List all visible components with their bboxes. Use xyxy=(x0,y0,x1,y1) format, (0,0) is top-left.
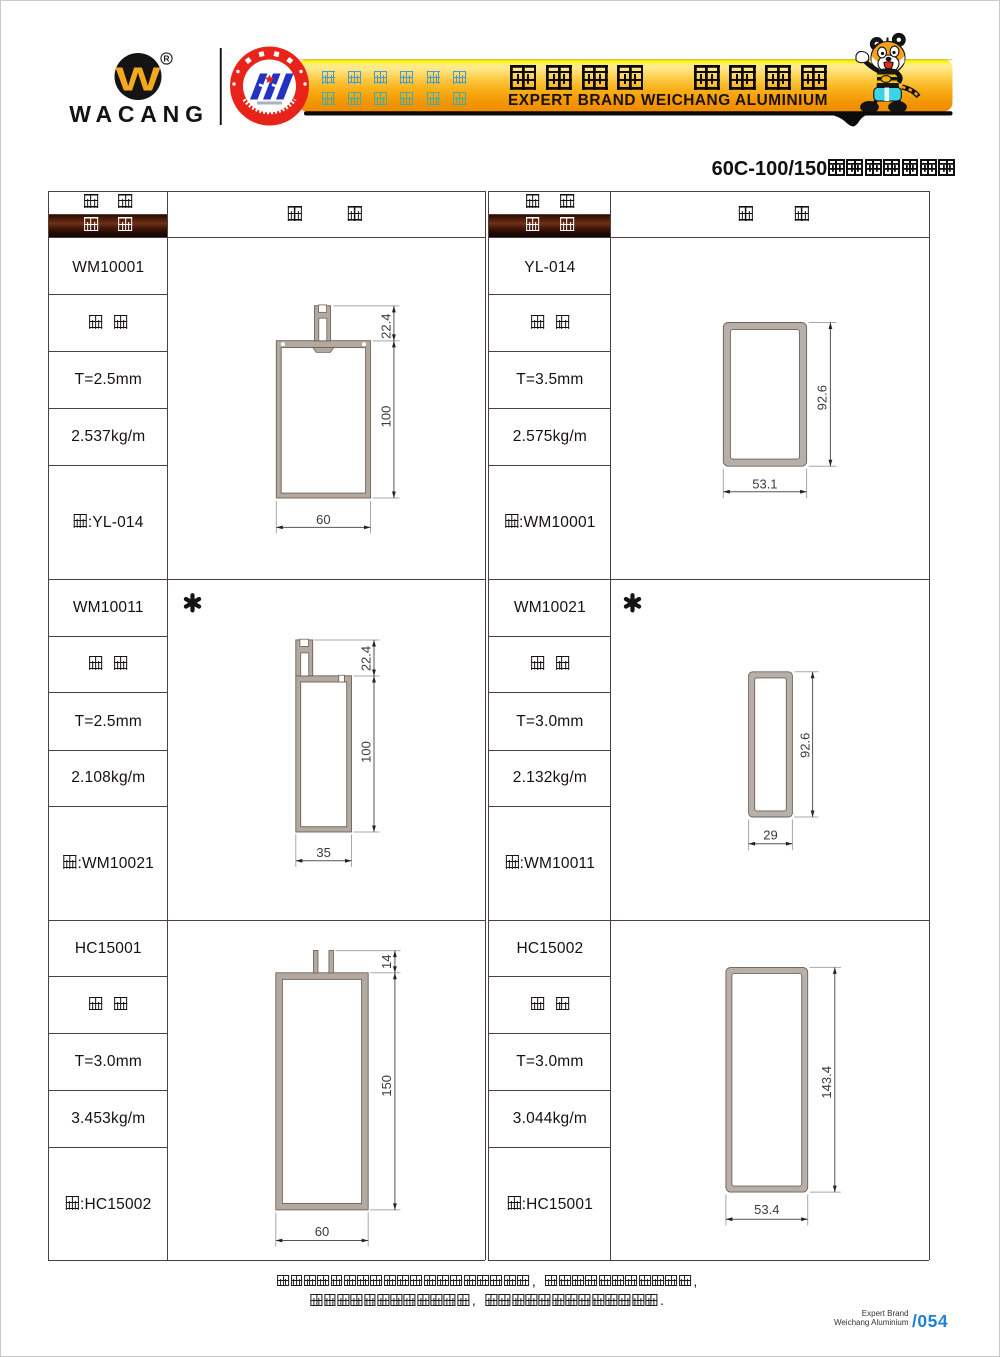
svg-text:150: 150 xyxy=(379,1075,394,1097)
svg-text:100: 100 xyxy=(379,406,394,428)
svg-text:60: 60 xyxy=(316,512,330,527)
svg-text:92.6: 92.6 xyxy=(798,733,813,758)
svg-text:22.4: 22.4 xyxy=(359,646,374,671)
svg-text:35: 35 xyxy=(316,845,330,860)
svg-text:92.6: 92.6 xyxy=(814,385,829,410)
svg-text:29: 29 xyxy=(763,828,777,843)
svg-text:53.4: 53.4 xyxy=(754,1202,779,1217)
svg-text:14: 14 xyxy=(379,954,394,968)
svg-text:22.4: 22.4 xyxy=(379,314,394,339)
svg-text:53.1: 53.1 xyxy=(752,476,777,491)
svg-text:60: 60 xyxy=(315,1224,329,1239)
svg-text:100: 100 xyxy=(359,741,374,763)
svg-text:143.4: 143.4 xyxy=(819,1066,834,1099)
